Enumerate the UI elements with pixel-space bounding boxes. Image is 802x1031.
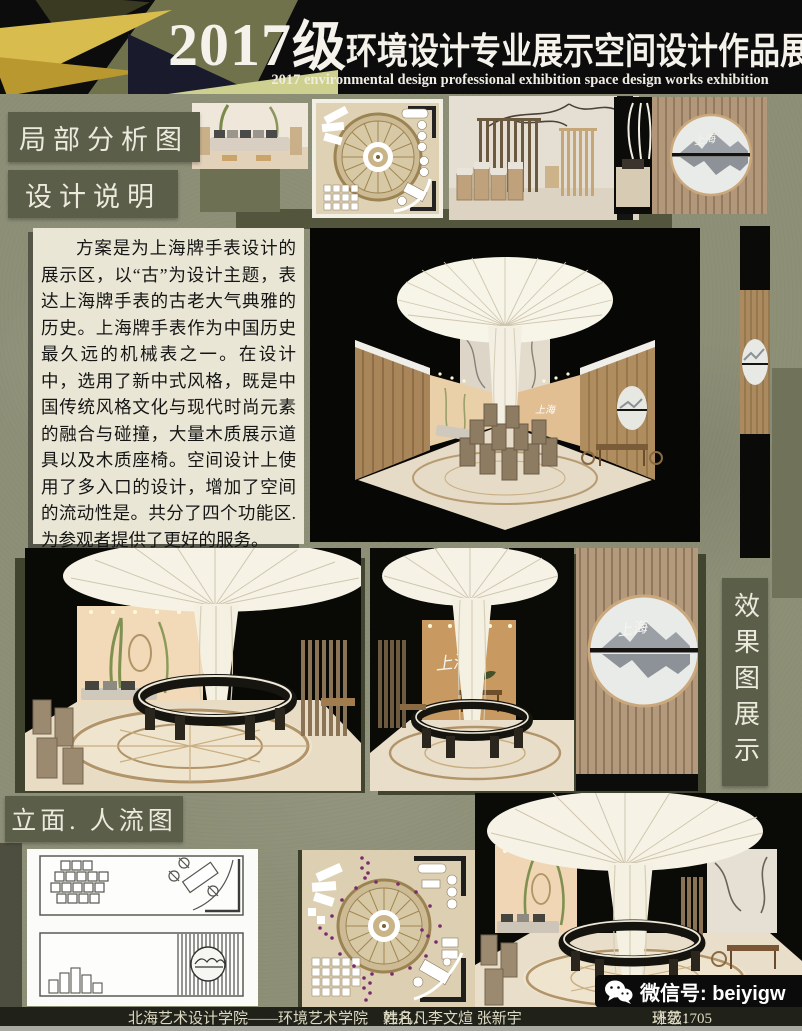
title-grade: 级: [292, 2, 346, 81]
thumb-floor-plan: [312, 99, 443, 218]
label-partial-analysis: 局部分析图: [8, 112, 200, 162]
names-value: 韩凡凡李文煊 张新宇: [383, 1007, 522, 1028]
thumb-lounge-render: [192, 103, 308, 169]
title-chinese: 环境设计专业展示空间设计作品展: [346, 21, 802, 74]
right-edge-render-strip: [740, 226, 770, 558]
interior-render-right: 上海: [370, 548, 574, 791]
wechat-badge: 微信号: beiyigw: [595, 975, 802, 1008]
interior-render-left: [25, 548, 361, 791]
top-accent-block: [200, 168, 280, 212]
shanghai-logo-text: 上海: [535, 404, 557, 416]
poster-title: 2017级环境设计专业展示空间设计作品展: [168, 2, 798, 81]
main-booth-render: 上海: [310, 228, 700, 542]
label-elevation-flow: 立面. 人流图: [5, 796, 183, 842]
label-render-display: 效果图展示: [722, 578, 768, 786]
wechat-id-text: 微信号: beiyigw: [640, 977, 786, 1006]
title-year: 2017: [168, 11, 292, 80]
label-design-notes: 设计说明: [8, 170, 178, 218]
elevation-diagrams: [27, 849, 258, 1006]
bottom-edge-strip: [0, 1026, 802, 1031]
thumb-slat-exhibit-render: [449, 96, 639, 220]
exhibition-poster: 2017级环境设计专业展示空间设计作品展 2017 environmental …: [0, 0, 802, 1031]
footer-credits-bar: 北海艺术设计学院——环境艺术学院 姓名：韩凡凡李文煊 张新宇 班级：环艺1705: [0, 1007, 802, 1026]
header-band: 2017级环境设计专业展示空间设计作品展 2017 environmental …: [0, 0, 802, 94]
poster-subtitle-english: 2017 environmental design professional e…: [240, 72, 800, 89]
bottom-left-edge-shade: [0, 843, 22, 1011]
wechat-icon: [603, 979, 633, 1005]
flow-floor-plan: [302, 850, 475, 1007]
design-notes-paragraph: 方案是为上海牌手表设计的展示区，以“古”为设计主题，表达上海牌手表的古老大气典雅…: [33, 228, 304, 544]
school-name: 北海艺术设计学院——环境艺术学院: [128, 1007, 368, 1028]
right-edge-accent-band: [772, 368, 802, 598]
moon-wall-strip-render: 上海: [576, 548, 698, 791]
thumb-moon-wall-render: 上海: [614, 97, 767, 214]
class-value: 环艺1705: [652, 1007, 712, 1028]
